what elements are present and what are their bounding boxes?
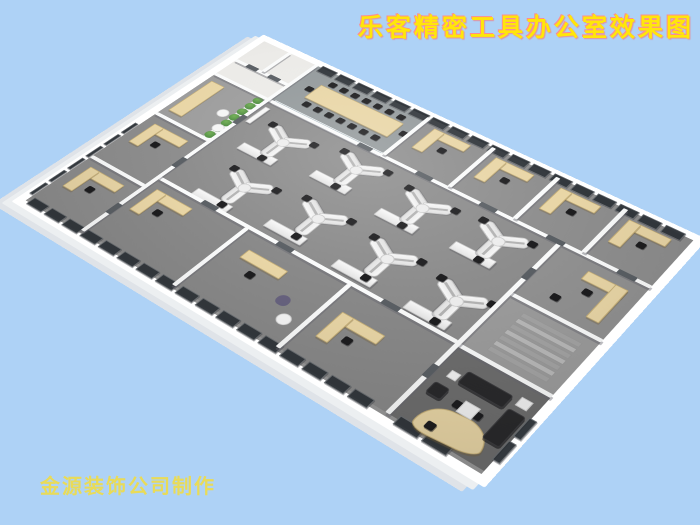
y-desk-arm bbox=[478, 220, 506, 243]
y-desk-arm bbox=[282, 137, 312, 149]
watermark: 金源装饰公司制作 bbox=[40, 470, 216, 499]
floor-plan bbox=[14, 36, 700, 485]
y-desk-arm bbox=[403, 188, 429, 209]
render-canvas: 乐客精密工具办公室效果图 金源装饰公司制作 bbox=[0, 0, 700, 525]
y-desk-arm bbox=[498, 235, 530, 249]
y-desk-arm bbox=[228, 168, 252, 189]
y-desk-arm bbox=[300, 198, 325, 220]
y-desk-arm bbox=[267, 124, 290, 143]
y-desk-arm bbox=[455, 295, 488, 310]
y-desk-arm bbox=[355, 165, 386, 177]
y-desk-arm bbox=[317, 213, 349, 226]
y-desk-arm bbox=[338, 151, 363, 171]
y-desk-arm bbox=[421, 202, 452, 215]
y-desk-arm bbox=[386, 253, 419, 267]
y-desk-arm bbox=[243, 182, 275, 195]
scene bbox=[0, 0, 700, 525]
y-desk-arm bbox=[368, 237, 395, 260]
y-desk-arm bbox=[435, 278, 464, 303]
